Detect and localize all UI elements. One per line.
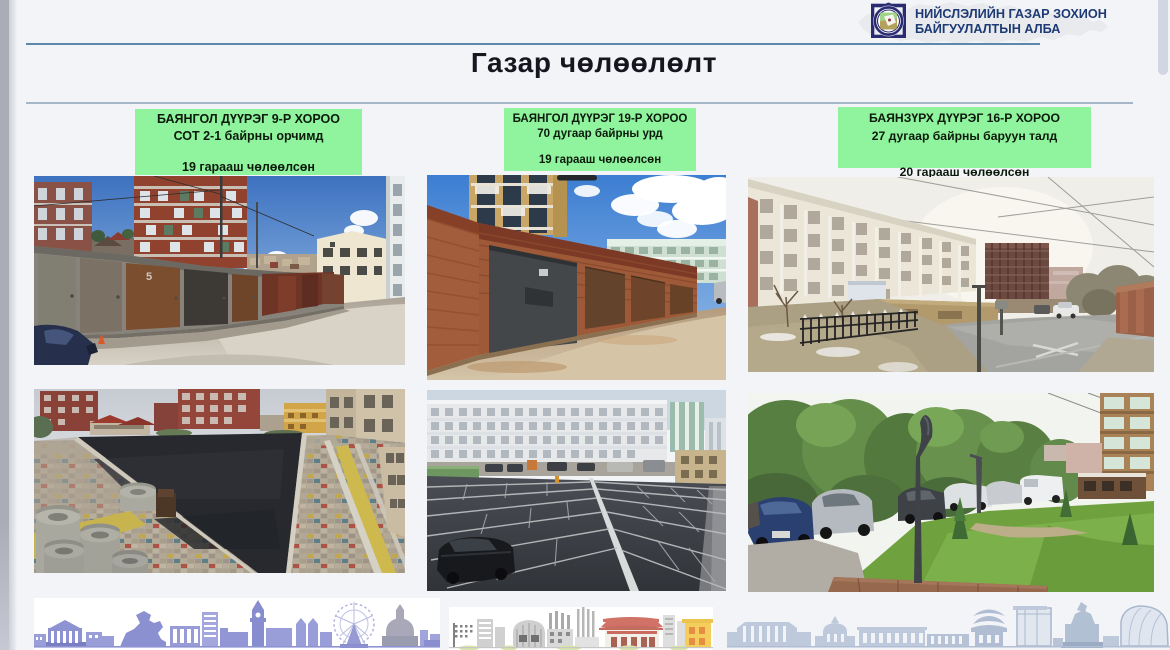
- svg-text:5: 5: [146, 271, 152, 283]
